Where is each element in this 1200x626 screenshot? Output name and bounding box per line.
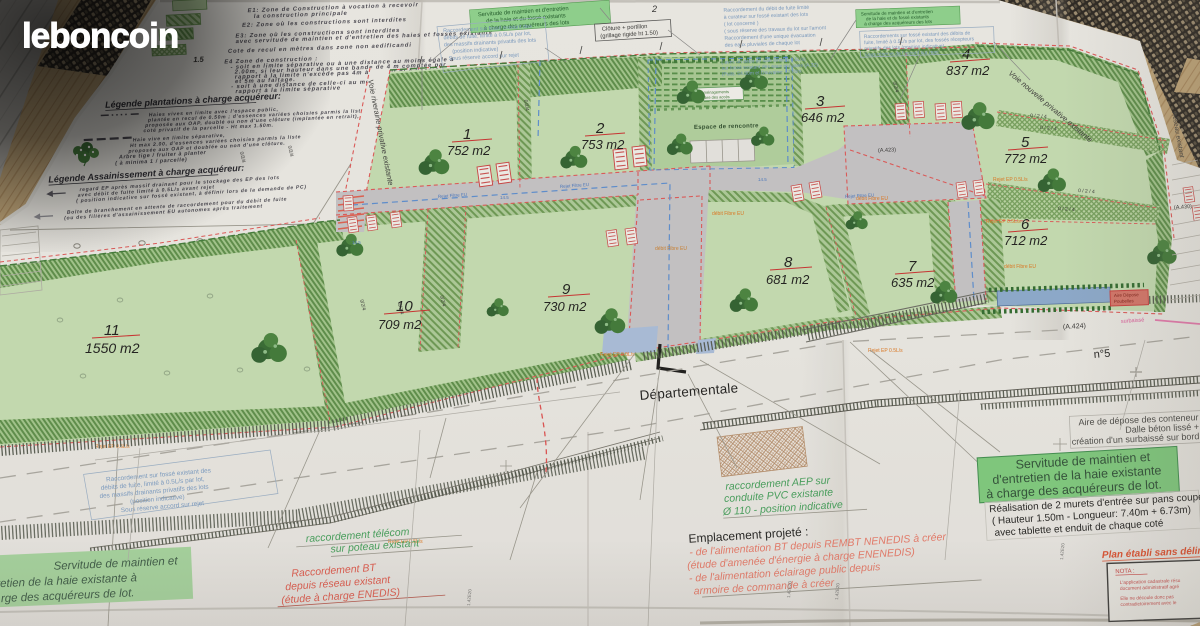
svg-text:leboncoin: leboncoin: [22, 17, 178, 56]
